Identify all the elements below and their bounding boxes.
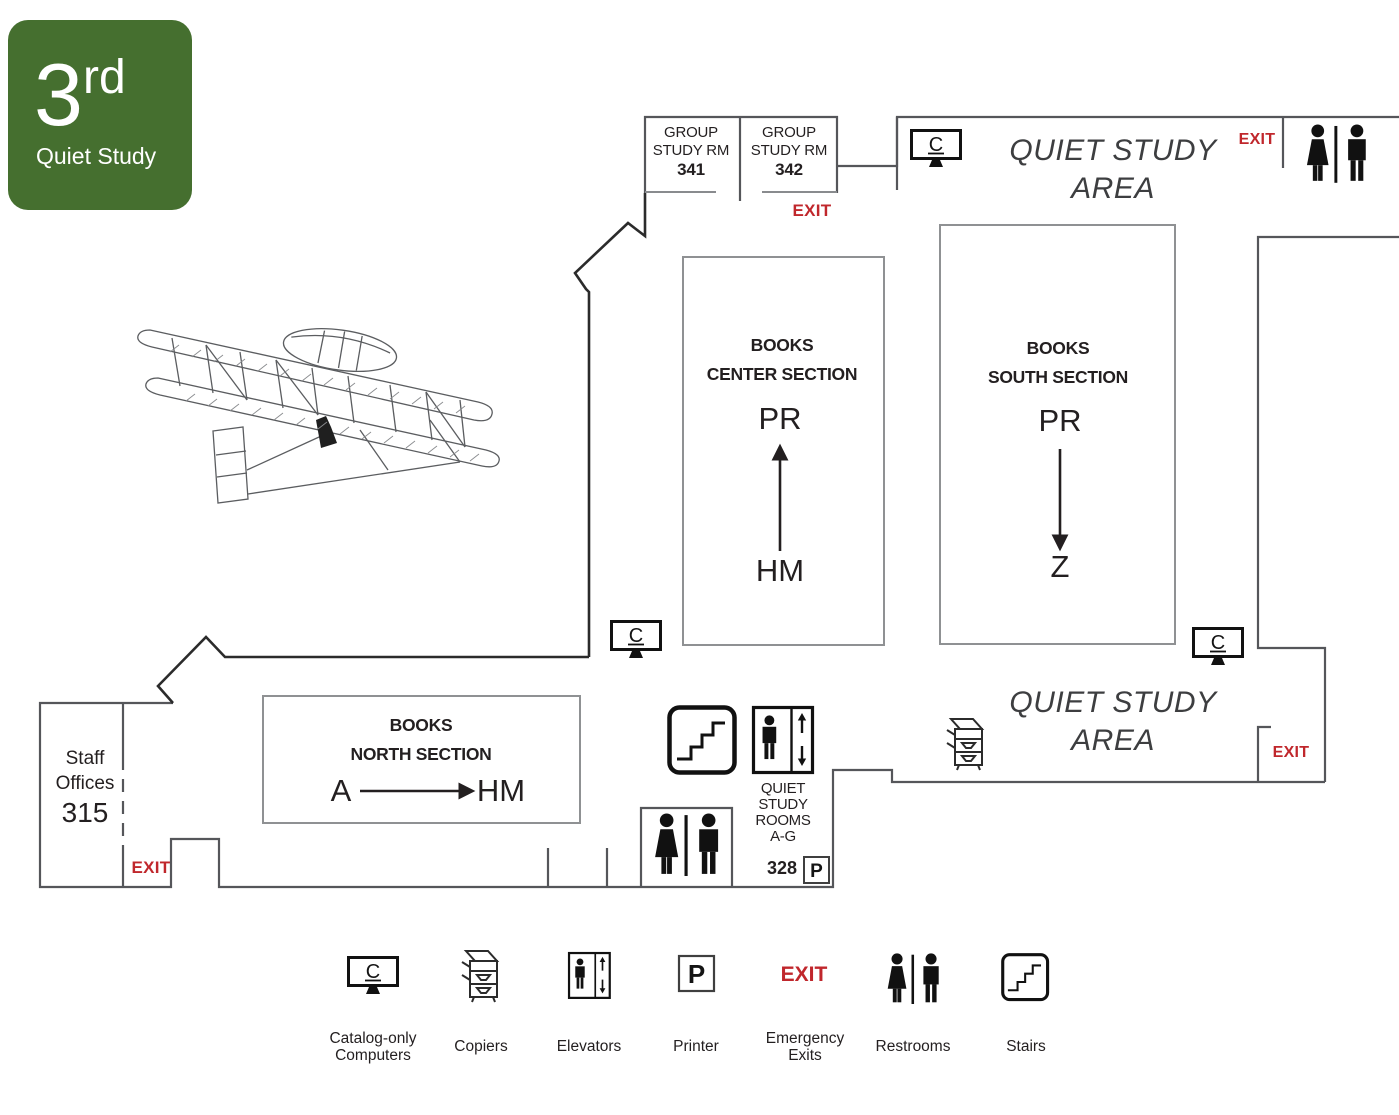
quiet-study-area-top-label: QUIET STUDY AREA <box>1009 132 1216 208</box>
printer-letter: P <box>688 959 705 989</box>
printer-letter: P <box>810 861 823 882</box>
floor-badge: 3rd Quiet Study <box>8 20 192 210</box>
floor-plan-page: C C C P C P 3rd Quiet Study <box>0 0 1399 1115</box>
books-center-label: BOOKS CENTER SECTION <box>707 331 857 389</box>
stairs-icon <box>1003 955 1048 1000</box>
books-north-label: BOOKS NORTH SECTION <box>351 711 492 769</box>
books-center-range-end: PR <box>758 402 801 436</box>
staff-offices-label: Staff Offices 315 <box>56 746 115 829</box>
elevator-icon <box>754 708 813 773</box>
legend-label-elevators: Elevators <box>534 1038 644 1055</box>
restrooms-icon <box>655 814 718 876</box>
group-study-342-label: GROUP STUDY RM 342 <box>751 124 827 180</box>
stairs-icon <box>670 708 735 773</box>
floor-suffix: rd <box>83 51 126 104</box>
quiet-study-rooms-label: QUIET STUDY ROOMS A-G <box>755 781 810 845</box>
legend-label-catalog-computers: Catalog-only Computers <box>321 1030 425 1064</box>
copier-icon <box>462 951 497 1002</box>
room-number: 315 <box>56 796 115 829</box>
books-center-range-start: HM <box>756 554 804 588</box>
legend-label-stairs: Stairs <box>971 1038 1081 1055</box>
elevator-icon <box>569 953 610 998</box>
legend-label-copiers: Copiers <box>426 1038 536 1055</box>
books-north-range-end: HM <box>477 774 525 808</box>
quiet-study-area-bottom-label: QUIET STUDY AREA <box>1009 684 1216 760</box>
books-south-range-start: PR <box>1038 404 1081 438</box>
wright-flyer-illustration <box>138 322 499 503</box>
exit-label-bottom-left: EXIT <box>132 858 171 878</box>
legend-label-printer: Printer <box>641 1038 751 1055</box>
emergency-exit-symbol: EXIT <box>781 963 828 987</box>
floor-number: 3rd <box>34 30 192 143</box>
quiet-study-rooms-number: 328 <box>767 858 797 879</box>
legend-icons: C P <box>349 951 1048 1004</box>
catalog-computer-letter: C <box>1211 632 1225 654</box>
exit-label-top: EXIT <box>793 201 832 221</box>
books-south-label: BOOKS SOUTH SECTION <box>988 334 1128 392</box>
restrooms-icon <box>888 953 939 1004</box>
room-number: 342 <box>751 160 827 180</box>
exit-label-bottom-right: EXIT <box>1273 744 1310 762</box>
room-number: 341 <box>653 160 729 180</box>
exit-label-top-right: EXIT <box>1239 131 1276 149</box>
legend-label-emergency-exits: Emergency Exits <box>759 1030 851 1064</box>
copier-icon <box>947 719 982 770</box>
books-south-range-end: Z <box>1051 550 1070 584</box>
catalog-computer-letter: C <box>366 961 380 983</box>
legend-label-restrooms: Restrooms <box>858 1038 968 1055</box>
catalog-computer-letter: C <box>629 625 643 647</box>
pilot-figure <box>316 416 337 448</box>
restrooms-icon <box>1307 124 1366 182</box>
floor-label: Quiet Study <box>36 143 192 170</box>
books-north-range-start: A <box>331 774 352 808</box>
catalog-computer-letter: C <box>929 134 943 156</box>
group-study-341-label: GROUP STUDY RM 341 <box>653 124 729 180</box>
